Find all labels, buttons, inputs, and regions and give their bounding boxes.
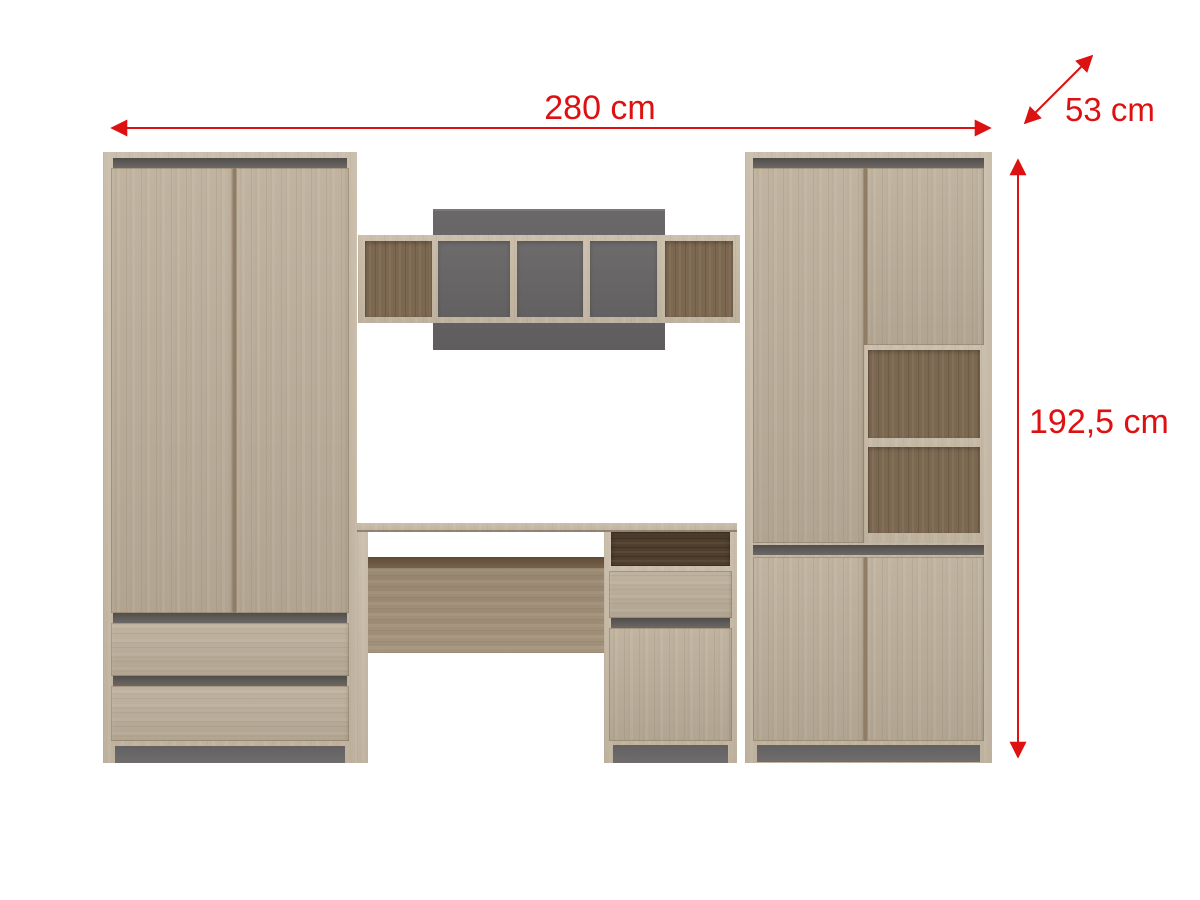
wardrobe-door-right bbox=[236, 168, 349, 613]
wardrobe-top-handle-strip bbox=[113, 158, 347, 168]
width-dimension-label: 280 cm bbox=[450, 91, 750, 125]
desk-modesty-panel bbox=[368, 568, 604, 653]
desk-pedestal-open-niche bbox=[611, 532, 730, 566]
wardrobe-drawer2-handle-strip bbox=[113, 676, 347, 686]
desk-back-rail bbox=[368, 557, 604, 568]
desk-leg bbox=[357, 532, 368, 763]
wall-shelf-compartment-gray-3 bbox=[590, 241, 657, 317]
wardrobe-plinth bbox=[115, 746, 345, 763]
wardrobe-drawer2 bbox=[111, 686, 349, 741]
wardrobe-door-left bbox=[111, 168, 233, 613]
height-dimension-label: 192,5 cm bbox=[1029, 405, 1169, 439]
desk-top bbox=[357, 523, 737, 532]
cabinet-tall-door-left bbox=[753, 168, 864, 543]
cabinet-lower-door-left bbox=[753, 557, 864, 741]
cabinet-middle-handle-strip bbox=[753, 545, 984, 555]
wall-shelf-compartment-wood-right bbox=[665, 241, 733, 317]
wardrobe bbox=[103, 152, 357, 763]
tall-cabinet bbox=[745, 152, 992, 763]
wall-shelf-compartment-wood-left bbox=[365, 241, 432, 317]
cabinet-top-handle-strip bbox=[753, 158, 984, 168]
cabinet-plinth bbox=[757, 745, 980, 762]
desk-pedestal-plinth bbox=[613, 745, 728, 763]
depth-dimension-label: 53 cm bbox=[1065, 93, 1155, 126]
cabinet-open-shelf-2 bbox=[868, 447, 980, 533]
wardrobe-drawer1-handle-strip bbox=[113, 613, 347, 623]
cabinet-lower-door-right bbox=[867, 557, 984, 741]
wall-shelf bbox=[358, 235, 740, 323]
cabinet-open-shelf-1 bbox=[868, 350, 980, 438]
desk-pedestal-handle-strip bbox=[611, 618, 730, 628]
desk-pedestal bbox=[604, 532, 737, 763]
wall-shelf-compartment-gray-2 bbox=[517, 241, 583, 317]
desk-pedestal-drawer bbox=[609, 571, 732, 618]
cabinet-upper-door-right bbox=[867, 168, 984, 345]
wardrobe-drawer1 bbox=[111, 623, 349, 676]
furniture-dimension-diagram: 280 cm 53 cm 192,5 cm bbox=[0, 0, 1200, 900]
cabinet-open-shelf-section bbox=[864, 345, 984, 543]
desk-pedestal-door bbox=[609, 628, 732, 741]
wall-shelf-compartment-gray-1 bbox=[438, 241, 510, 317]
